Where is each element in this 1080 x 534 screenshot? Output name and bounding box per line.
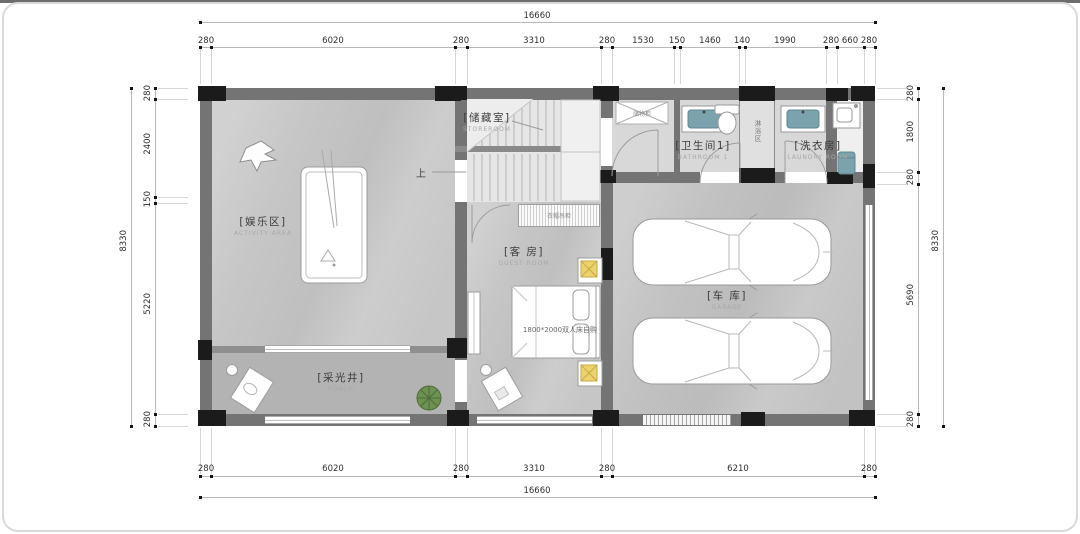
- dim-label: 140: [722, 36, 762, 46]
- column: [851, 86, 875, 101]
- dim-left-overall: 8330: [119, 228, 129, 254]
- floor-plan-page: [娱乐区] ACTIVITY AREA [储藏室] STOREROOM [卫生间…: [0, 0, 1080, 534]
- dim-label: 150: [143, 189, 153, 209]
- dim-label: 280: [186, 464, 226, 474]
- column: [849, 410, 875, 426]
- dim-label: 280: [441, 36, 481, 46]
- dim-extension-line: [158, 99, 188, 100]
- niche-floor: [837, 99, 864, 172]
- column: [593, 86, 619, 101]
- laundry-label-cn: [洗衣房]: [773, 138, 863, 153]
- dim-tick: [874, 496, 877, 499]
- dim-tick: [917, 98, 920, 101]
- dim-tick: [863, 475, 866, 478]
- dim-line-right-segments: [918, 88, 919, 426]
- laundry-label: [洗衣房] LAUNDRY ROOM: [773, 138, 863, 161]
- dim-extension-line: [158, 414, 188, 415]
- dim-tick: [611, 475, 614, 478]
- dim-line-bottom-segments: [200, 476, 875, 477]
- dim-tick: [874, 21, 877, 24]
- laundry-label-en: LAUNDRY ROOM: [773, 154, 863, 161]
- dim-tick: [210, 475, 213, 478]
- column: [598, 170, 616, 183]
- entertainment-label-en: ACTIVITY AREA: [218, 230, 308, 237]
- dim-tick: [917, 87, 920, 90]
- dim-extension-line: [680, 49, 681, 84]
- image-top-edge: [0, 0, 1080, 3]
- dim-tick: [917, 425, 920, 428]
- dim-label: 2400: [143, 131, 153, 157]
- wall-niche-divider: [826, 99, 837, 172]
- dim-top-overall: 16660: [507, 11, 567, 21]
- garage-label: [车 库] GARAGE: [682, 288, 772, 311]
- storage-label: [储藏室] STOREROOM: [442, 110, 532, 133]
- dim-label: 280: [143, 409, 153, 429]
- dim-extension-line: [200, 49, 201, 84]
- column: [447, 338, 467, 358]
- dim-extension-line: [158, 203, 188, 204]
- dim-extension-line: [875, 49, 876, 84]
- column: [593, 410, 619, 426]
- dim-line-top-segments: [200, 47, 875, 48]
- dim-tick: [154, 196, 157, 199]
- wall-left: [200, 88, 212, 426]
- dim-tick: [154, 98, 157, 101]
- dim-label: 280: [143, 83, 153, 103]
- guest-room-floor: [467, 202, 601, 414]
- dim-tick: [917, 413, 920, 416]
- dim-extension-line: [467, 49, 468, 84]
- dim-line-bottom-overall: [200, 497, 875, 498]
- dim-extension-line: [158, 88, 188, 89]
- wardrobe-label: 衣帽吊柜: [518, 211, 600, 220]
- column: [739, 168, 775, 183]
- dim-label: 280: [906, 409, 916, 429]
- dim-tick: [199, 496, 202, 499]
- dim-extension-line: [739, 49, 740, 84]
- guest-label-cn: [客 房]: [479, 244, 569, 259]
- dim-bottom-overall: 16660: [507, 486, 567, 496]
- wall-v2-lower: [601, 166, 613, 426]
- lightwell-label: [采光井] PORCH: [296, 370, 386, 393]
- dim-tick: [600, 475, 603, 478]
- column: [827, 172, 853, 184]
- dim-tick: [874, 475, 877, 478]
- dim-extension-line: [612, 49, 613, 84]
- column: [826, 88, 848, 101]
- dim-tick: [942, 87, 945, 90]
- entertainment-label-cn: [娱乐区]: [218, 214, 308, 229]
- dim-tick: [466, 475, 469, 478]
- column: [601, 248, 613, 280]
- dim-extension-line: [864, 49, 865, 84]
- dim-label: 6020: [313, 464, 353, 474]
- dim-label: 280: [441, 464, 481, 474]
- dim-label: 280: [186, 36, 226, 46]
- column: [449, 86, 467, 100]
- dim-label: 1990: [765, 36, 805, 46]
- dim-tick: [154, 202, 157, 205]
- bed-annotation: 1800*2000双人床自购: [500, 325, 620, 335]
- garage-right-window: [865, 205, 873, 400]
- dim-label: 3310: [514, 464, 554, 474]
- dim-label: 280: [587, 36, 627, 46]
- lightwell-inner-window: [265, 345, 410, 353]
- dim-tick: [154, 87, 157, 90]
- wall-h2-a: [612, 172, 700, 183]
- dim-extension-line: [455, 49, 456, 84]
- storage-label-cn: [储藏室]: [442, 110, 532, 125]
- bathroom1-label-cn: [卫生间1]: [658, 138, 748, 153]
- lightwell-label-en: PORCH: [296, 386, 386, 393]
- dim-extension-line: [211, 49, 212, 84]
- dim-line-right-overall: [943, 88, 944, 426]
- column: [739, 86, 775, 101]
- dim-label: 5220: [143, 291, 153, 317]
- dim-right-overall: 8330: [931, 228, 941, 254]
- wall-lightwell-left: [211, 346, 265, 353]
- dim-tick: [130, 425, 133, 428]
- dim-extension-line: [745, 49, 746, 84]
- dim-tick: [154, 413, 157, 416]
- dim-label: 6210: [718, 464, 758, 474]
- garage-label-cn: [车 库]: [682, 288, 772, 303]
- stairs-up-label: 上: [416, 165, 426, 180]
- garage-door: [643, 415, 731, 425]
- dim-label: 280: [849, 464, 889, 474]
- dim-tick: [130, 87, 133, 90]
- column: [741, 412, 765, 426]
- column: [198, 86, 226, 101]
- lightwell-bottom-window: [265, 416, 410, 424]
- dim-tick: [454, 475, 457, 478]
- dim-label: 6020: [313, 36, 353, 46]
- lightwell-label-cn: [采光井]: [296, 370, 386, 385]
- dim-extension-line: [837, 49, 838, 84]
- dim-label: 1800: [906, 119, 916, 145]
- dim-line-left-segments: [155, 88, 156, 426]
- dim-tick: [917, 183, 920, 186]
- dim-label: 3310: [514, 36, 554, 46]
- bathroom1-label: [卫生间1] BATHROOM 1: [658, 138, 748, 161]
- wall-v1-mid: [455, 202, 467, 360]
- dim-extension-line: [601, 49, 602, 84]
- column: [198, 410, 226, 426]
- wall-bath-divider: [674, 99, 680, 172]
- column: [198, 340, 212, 360]
- dim-label: 5690: [906, 282, 916, 308]
- dim-tick: [199, 21, 202, 24]
- guest-label: [客 房] GUEST ROOM: [479, 244, 569, 267]
- dim-extension-line: [826, 49, 827, 84]
- garage-label-en: GARAGE: [682, 304, 772, 311]
- dim-tick: [942, 425, 945, 428]
- guest-bottom-window: [477, 416, 592, 424]
- dim-line-top-overall: [200, 22, 875, 23]
- dim-tick: [154, 425, 157, 428]
- entertainment-label: [娱乐区] ACTIVITY AREA: [218, 214, 308, 237]
- column: [863, 164, 875, 188]
- dim-label: 280: [849, 36, 889, 46]
- entry-cabinet-label: 储物柜: [616, 109, 668, 118]
- dim-extension-line: [158, 426, 188, 427]
- dim-extension-line: [158, 197, 188, 198]
- dim-label: 280: [906, 167, 916, 187]
- guest-label-en: GUEST ROOM: [479, 260, 569, 267]
- bathroom1-label-en: BATHROOM 1: [658, 154, 748, 161]
- dim-label: 280: [906, 83, 916, 103]
- dim-label: 280: [587, 464, 627, 474]
- dim-tick: [199, 475, 202, 478]
- dim-extension-line: [674, 49, 675, 84]
- dim-tick: [917, 171, 920, 174]
- storage-label-en: STOREROOM: [442, 126, 532, 133]
- column: [447, 410, 469, 426]
- dim-line-left-overall: [131, 88, 132, 426]
- shower-shaft-label: 淋浴区: [752, 120, 762, 143]
